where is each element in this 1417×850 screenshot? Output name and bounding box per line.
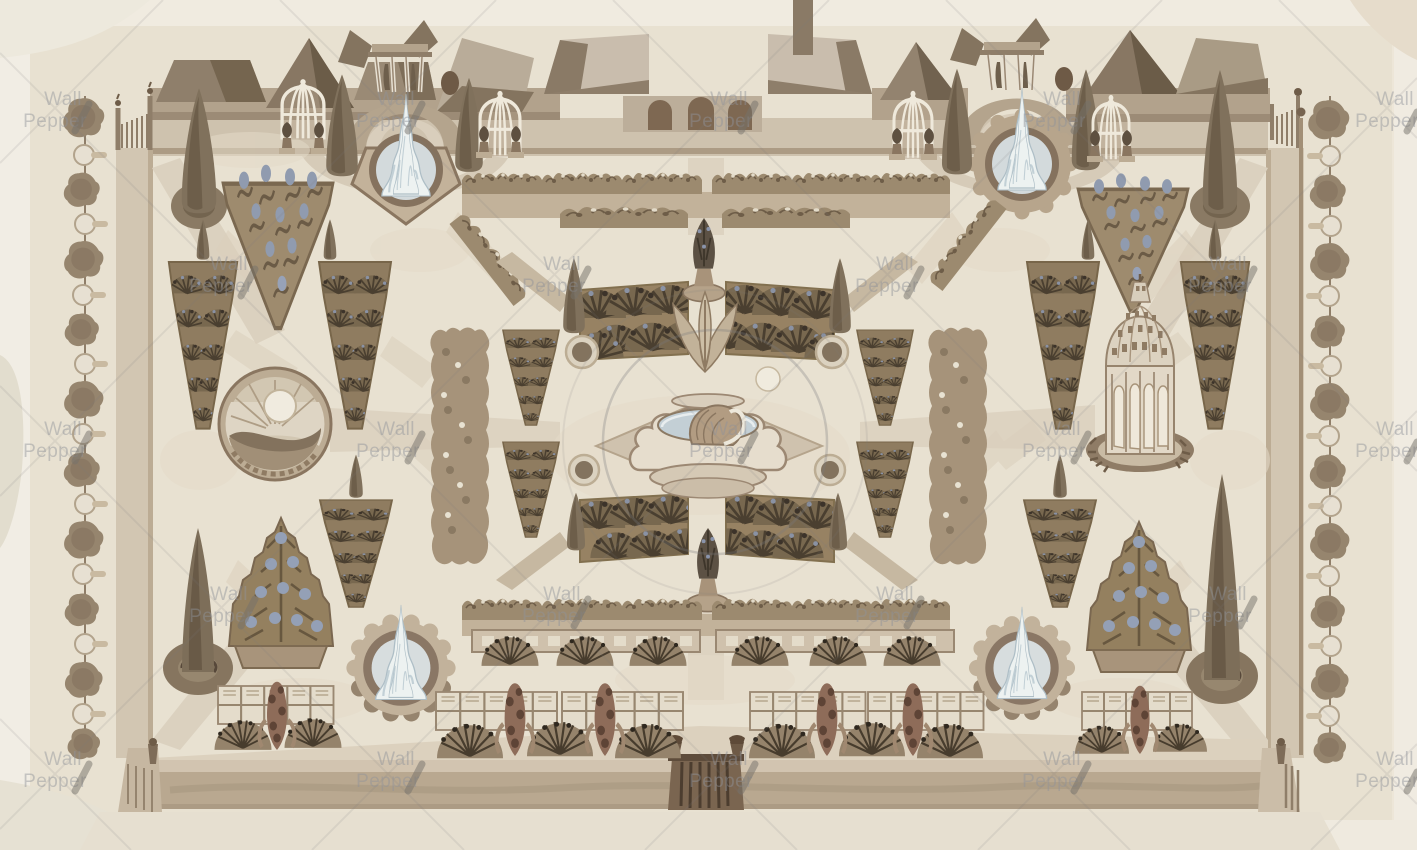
- svg-text:Wall: Wall: [1043, 419, 1081, 440]
- svg-text:Wall: Wall: [876, 254, 914, 275]
- svg-text:Wall: Wall: [44, 749, 82, 770]
- svg-text:Wall: Wall: [377, 749, 415, 770]
- svg-text:Wall: Wall: [1376, 89, 1414, 110]
- svg-text:Wall: Wall: [710, 749, 748, 770]
- svg-text:Wall: Wall: [876, 584, 914, 605]
- svg-text:Wall: Wall: [710, 89, 748, 110]
- svg-text:Wall: Wall: [44, 419, 82, 440]
- svg-text:Wall: Wall: [210, 584, 248, 605]
- svg-text:Wall: Wall: [543, 584, 581, 605]
- svg-text:Wall: Wall: [1043, 89, 1081, 110]
- svg-text:Wall: Wall: [1376, 419, 1414, 440]
- svg-text:Wall: Wall: [44, 89, 82, 110]
- svg-text:Wall: Wall: [1043, 749, 1081, 770]
- svg-text:Wall: Wall: [377, 89, 415, 110]
- svg-text:Wall: Wall: [1376, 749, 1414, 770]
- svg-text:Wall: Wall: [1209, 584, 1247, 605]
- svg-text:Wall: Wall: [710, 419, 748, 440]
- svg-text:Wall: Wall: [210, 254, 248, 275]
- svg-text:Wall: Wall: [543, 254, 581, 275]
- svg-text:Wall: Wall: [1209, 254, 1247, 275]
- svg-text:Wall: Wall: [377, 419, 415, 440]
